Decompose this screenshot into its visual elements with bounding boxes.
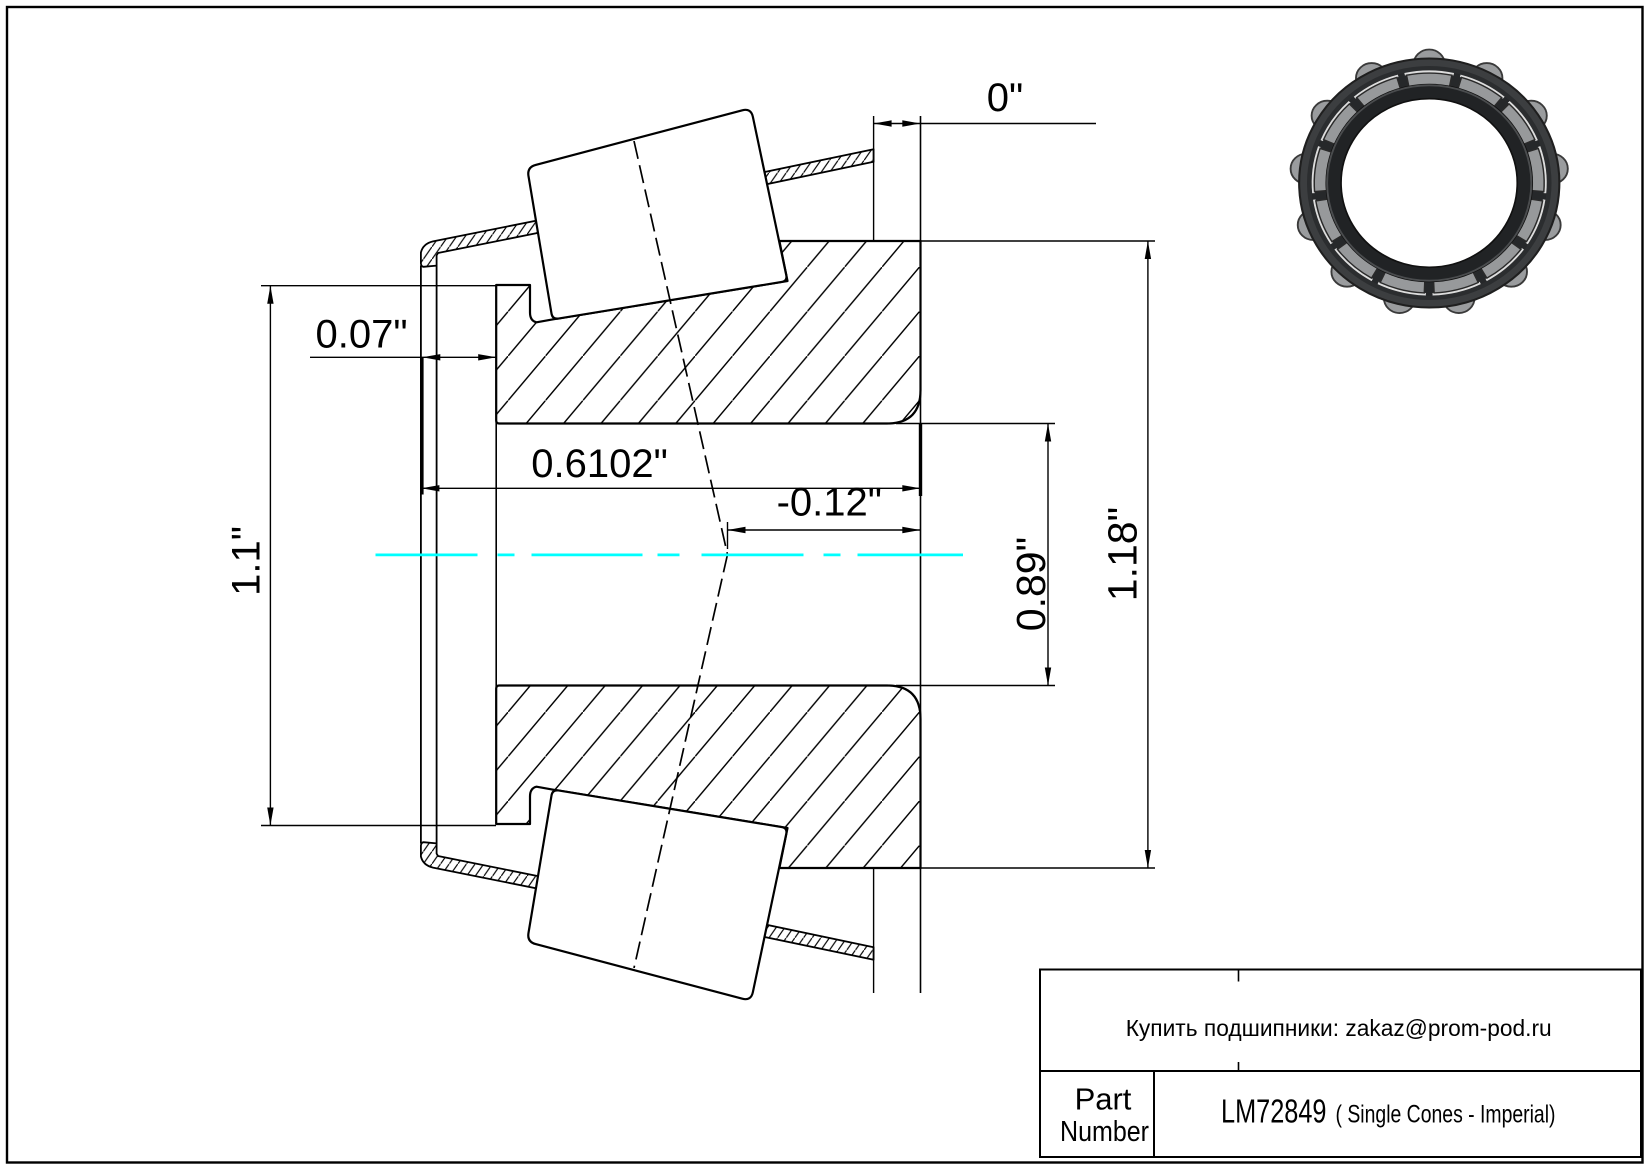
svg-text:-0.12": -0.12" — [777, 481, 882, 525]
svg-text:0.6102": 0.6102" — [531, 442, 668, 486]
svg-text:Number: Number — [1060, 1116, 1149, 1148]
svg-text:Part: Part — [1075, 1082, 1132, 1117]
svg-text:1.1": 1.1" — [225, 526, 269, 596]
svg-text:0.89": 0.89" — [1008, 537, 1054, 631]
svg-text:1.18": 1.18" — [1100, 507, 1146, 601]
svg-text:0": 0" — [987, 76, 1023, 120]
svg-text:0.07": 0.07" — [315, 313, 407, 357]
svg-text:Купить подшипники: zakaz@prom-: Купить подшипники: zakaz@prom-pod.ru — [1126, 1015, 1552, 1041]
